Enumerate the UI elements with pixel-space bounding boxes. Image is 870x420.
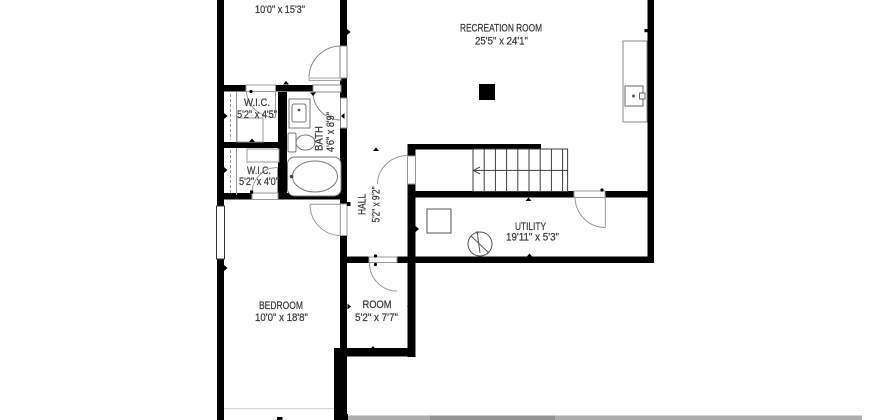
svg-text:W.I.C.: W.I.C. (244, 97, 270, 109)
svg-text:BEDROOM: BEDROOM (259, 300, 303, 312)
svg-text:19'11" x 5'3": 19'11" x 5'3" (506, 232, 559, 244)
svg-text:RECREATION ROOM: RECREATION ROOM (460, 23, 542, 35)
svg-text:5'2" x 7'7": 5'2" x 7'7" (355, 312, 398, 324)
svg-text:BATH: BATH (314, 126, 326, 151)
svg-text:5'2" x 4'5": 5'2" x 4'5" (237, 109, 277, 121)
svg-text:10'0" x 18'8": 10'0" x 18'8" (255, 312, 308, 324)
svg-text:10'0" x 15'3": 10'0" x 15'3" (255, 4, 305, 16)
svg-text:HALL: HALL (357, 194, 369, 215)
svg-text:ROOM: ROOM (363, 299, 392, 311)
svg-text:25'5" x 24'1": 25'5" x 24'1" (475, 36, 528, 48)
svg-text:4'6" x 8'9": 4'6" x 8'9" (325, 112, 337, 152)
svg-text:5'2" x 9'2": 5'2" x 9'2" (371, 187, 383, 223)
svg-text:5'2" x 4'0": 5'2" x 4'0" (239, 176, 279, 188)
